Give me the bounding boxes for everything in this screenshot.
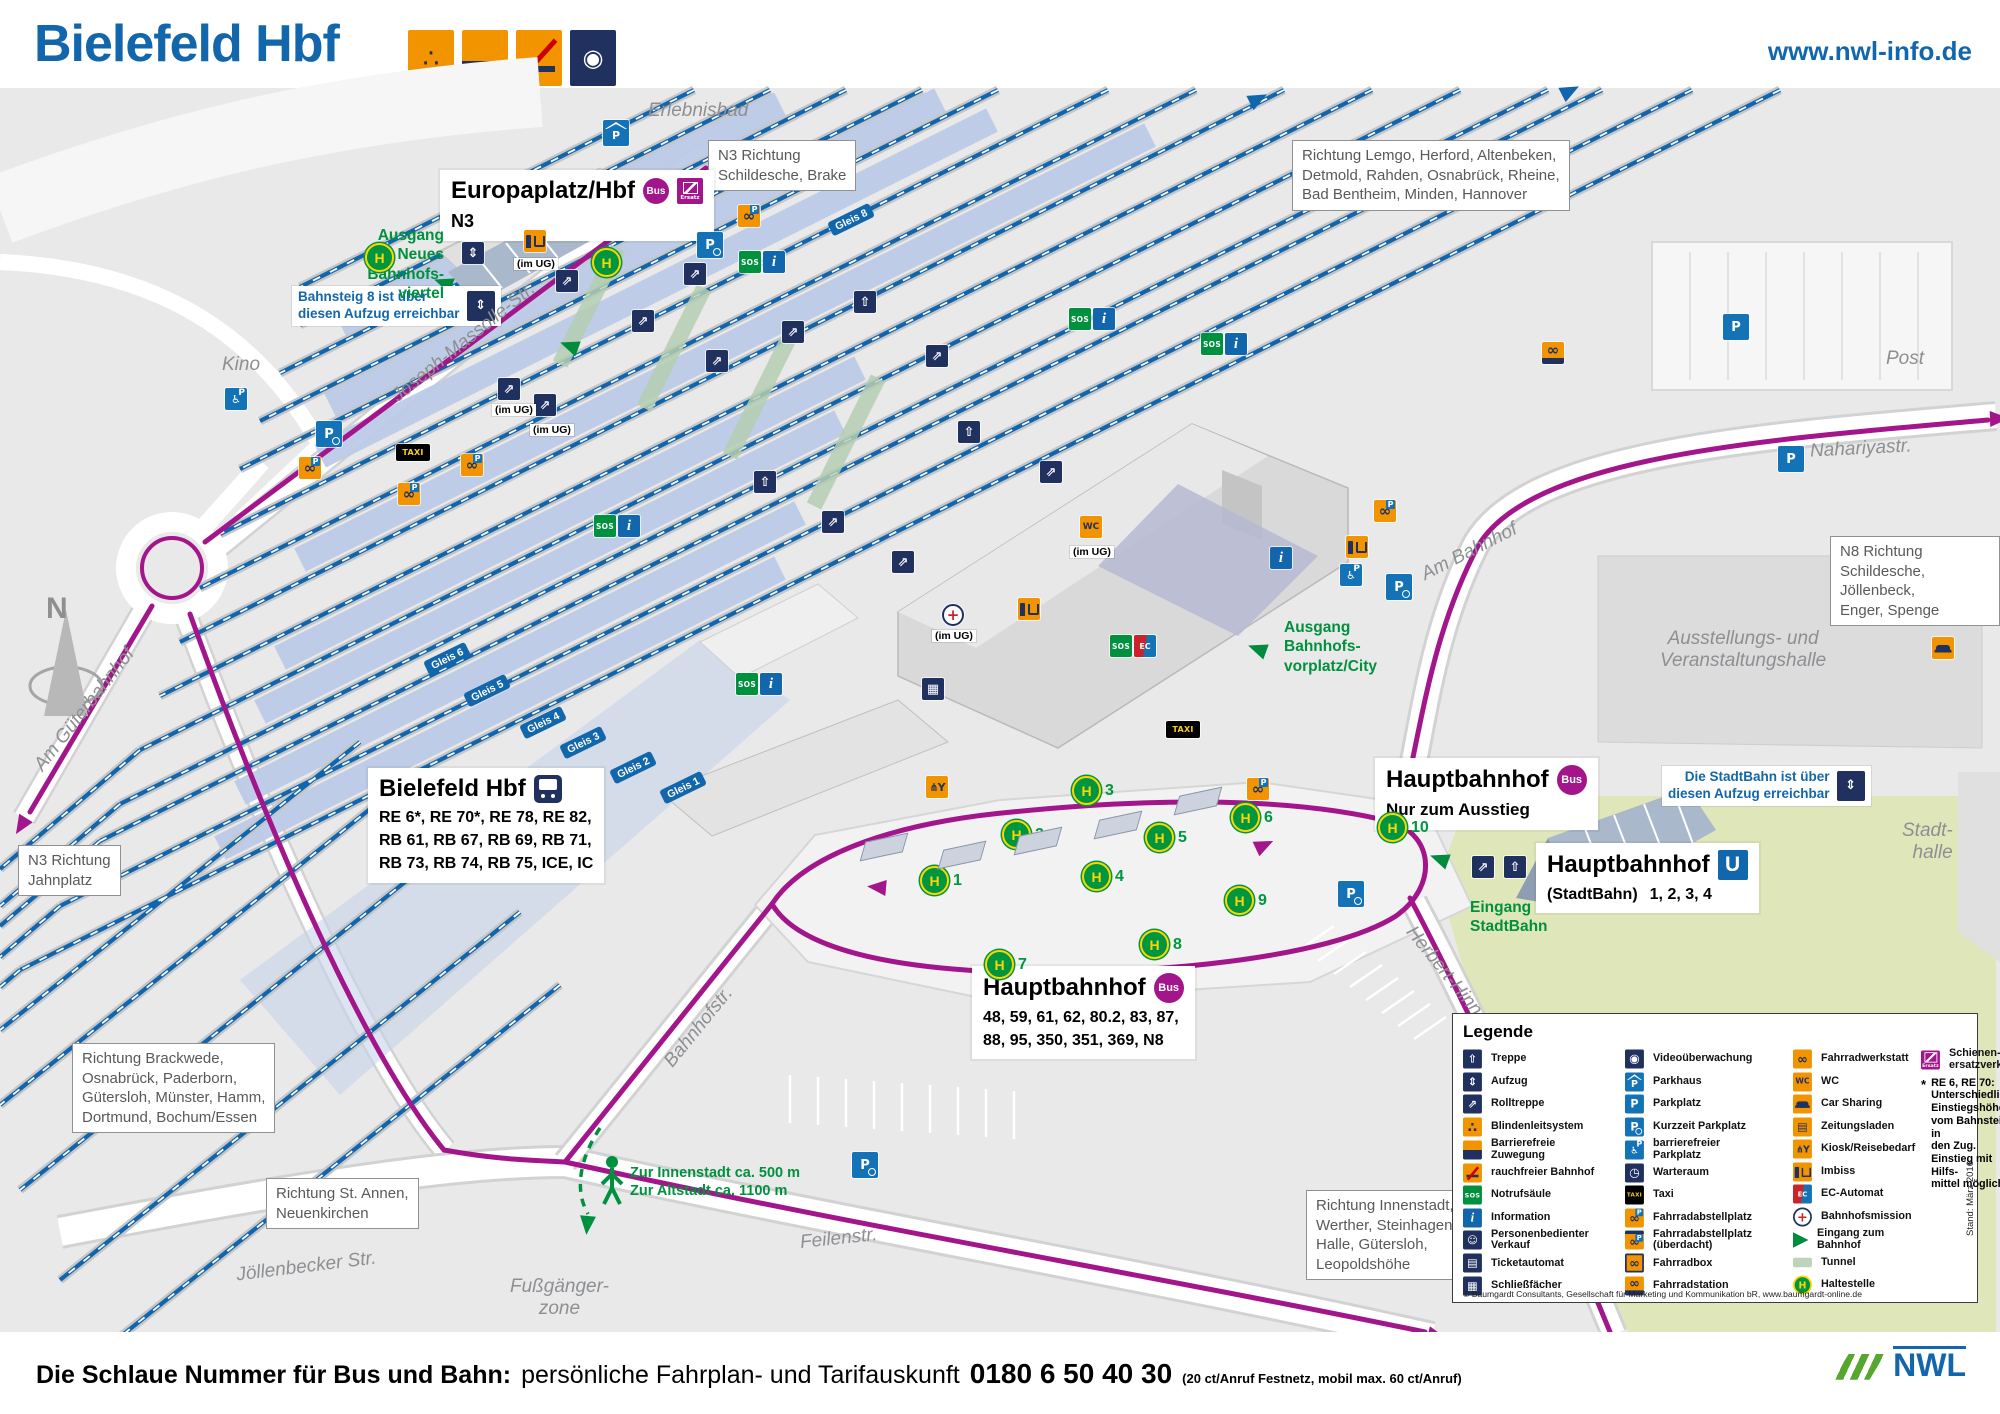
legend-item: Car Sharing — [1793, 1093, 1921, 1116]
haltestelle-icon: H — [592, 248, 621, 277]
bus-stop-h4: H4 — [1082, 862, 1124, 891]
ec-icon — [1134, 635, 1156, 657]
rolltreppe-icon — [1463, 1095, 1482, 1114]
im-ug-label: (im UG) — [932, 630, 976, 642]
aufzug-icon — [1463, 1072, 1482, 1091]
info-icon — [1463, 1208, 1482, 1227]
taxi2-icon — [1166, 721, 1200, 738]
legend-item-label: Ticketautomat — [1491, 1258, 1564, 1270]
stop-number: 7 — [1018, 956, 1027, 974]
bus-stop-h7: H7 — [985, 950, 1027, 979]
legend-item: rauchfreier Bahnhof — [1463, 1161, 1625, 1184]
note-star: * — [1921, 1077, 1926, 1191]
legend-column-1: Treppe Aufzug Rolltreppe Blindenleitsyst… — [1463, 1048, 1625, 1297]
car-icon — [1932, 637, 1954, 659]
p-icon — [1723, 314, 1749, 340]
legend-copyright: © Baumgardt Consultants, Gesellschaft fü… — [1463, 1289, 1862, 1299]
footer-regular-text: persönliche Fahrplan- und Tarifauskunft — [521, 1361, 960, 1390]
legend-item: Barrierefreie Zuwegung — [1463, 1138, 1625, 1161]
esc-icon — [822, 511, 844, 533]
legend: Legende Treppe Aufzug Rolltreppe Blinden… — [1452, 1013, 1978, 1303]
legend-item: Videoüberwachung — [1625, 1048, 1793, 1071]
legend-column-3: Fahrradwerkstatt WC Car Sharing Zeitungs… — [1793, 1048, 1921, 1297]
legend-note: * RE 6, RE 70: Unterschiedliche Einstieg… — [1921, 1077, 2000, 1191]
pclock-icon — [1338, 881, 1364, 907]
bus-shelter — [1174, 787, 1223, 816]
bus-stop-h8: H8 — [1140, 930, 1182, 959]
esc-icon — [498, 378, 520, 400]
nwl-logo-text: NWL — [1893, 1346, 1966, 1380]
legend-column-4: Schienen- ersatzverkehr * RE 6, RE 70: U… — [1921, 1048, 2000, 1297]
legend-item-label: Parkhaus — [1653, 1076, 1702, 1088]
legend-item-label: Fahrradbox — [1653, 1258, 1712, 1270]
legend-item: WC — [1793, 1071, 1921, 1094]
gleis-badge: Gleis 5 — [463, 674, 511, 708]
bus-stop-h3: H3 — [1072, 776, 1114, 805]
stairs-icon — [854, 291, 876, 313]
esc-icon — [534, 394, 556, 416]
legend-item: Tunnel — [1793, 1251, 1921, 1274]
bikep-icon — [738, 205, 760, 227]
ticket-icon — [1463, 1254, 1482, 1273]
wc-icon — [1793, 1072, 1812, 1091]
legend-item: Ticketautomat — [1463, 1252, 1625, 1275]
info-icon — [1093, 308, 1115, 330]
legend-column-2: Videoüberwachung Parkhaus Parkplatz Kurz… — [1625, 1048, 1793, 1297]
zeitung-icon — [1793, 1117, 1812, 1136]
nwl-logo: NWL — [1833, 1346, 1966, 1380]
sos-icon — [1201, 333, 1223, 355]
sos-icon — [739, 251, 761, 273]
legend-item-label: Parkplatz — [1653, 1098, 1701, 1110]
ersatz-icon — [1921, 1050, 1940, 1069]
bikep-icon — [1625, 1208, 1644, 1227]
p-icon — [1778, 446, 1804, 472]
haltestelle-icon: H — [365, 243, 394, 272]
legend-item-label: Notrufsäule — [1491, 1189, 1551, 1201]
bus-stop-h9: H9 — [1225, 886, 1267, 915]
legend-item-label: Tunnel — [1821, 1257, 1856, 1269]
haltestelle-icon: H — [1231, 803, 1260, 832]
haltestelle-icon: H — [1082, 862, 1111, 891]
bus-shelter — [938, 841, 987, 870]
legend-item-label: Kurzzeit Parkplatz — [1653, 1121, 1746, 1133]
gleis-badge: Gleis 1 — [659, 771, 707, 805]
legend-item: Eingang zum Bahnhof — [1793, 1228, 1921, 1251]
legend-item: Fahrradwerkstatt — [1793, 1048, 1921, 1071]
legend-item-label: Fahrradwerkstatt — [1821, 1053, 1909, 1065]
tunnel-icon — [1793, 1258, 1812, 1267]
legend-item-label: Imbiss — [1821, 1166, 1855, 1178]
footer-phone-number: 0180 6 50 40 30 — [970, 1358, 1172, 1390]
info-icon — [763, 251, 785, 273]
esc-icon — [782, 321, 804, 343]
bikep-icon — [1374, 500, 1396, 522]
legend-item: Blindenleitsystem — [1463, 1116, 1625, 1139]
bus-stop: H — [365, 243, 394, 272]
haltestelle-icon: H — [1072, 776, 1101, 805]
imbiss-icon — [1018, 598, 1040, 620]
rauchfrei-icon — [1463, 1163, 1482, 1182]
legend-item: Notrufsäule — [1463, 1184, 1625, 1207]
legend-item: Parkhaus — [1625, 1071, 1793, 1094]
note-title: RE 6, RE 70: — [1931, 1077, 2000, 1089]
page-footer: Die Schlaue Nummer für Bus und Bahn: per… — [0, 1332, 2000, 1414]
esc-icon — [1040, 461, 1062, 483]
stairs-icon — [754, 471, 776, 493]
kiosk-icon — [926, 776, 948, 798]
bus-stop-h1: H1 — [920, 866, 962, 895]
stop-number: 6 — [1264, 809, 1273, 827]
esc-icon — [1472, 856, 1494, 878]
mission-icon — [942, 604, 964, 626]
esc-icon — [926, 345, 948, 367]
stop-number: 4 — [1115, 868, 1124, 886]
imbiss-icon — [1793, 1162, 1812, 1181]
gleis-badge: Gleis 4 — [519, 706, 567, 740]
warte-icon — [1625, 1163, 1644, 1182]
legend-item-label: Kiosk/Reisebedarf — [1821, 1143, 1915, 1155]
aufzug-icon — [462, 242, 484, 264]
gleis-badge: Gleis 3 — [559, 726, 607, 760]
bikestation-icon — [1542, 342, 1564, 364]
info-icon — [618, 515, 640, 537]
sos-icon — [1069, 308, 1091, 330]
legend-item: Aufzug — [1463, 1071, 1625, 1094]
legend-item-label: barrierefreier Parkplatz — [1653, 1138, 1720, 1161]
legend-item-label: EC-Automat — [1821, 1188, 1883, 1200]
legend-item: Fahrradabstellplatz — [1625, 1206, 1793, 1229]
legend-item-label: Zeitungsladen — [1821, 1121, 1894, 1133]
legend-item-label: Barrierefreie Zuwegung — [1491, 1138, 1555, 1161]
bikep-icon — [299, 457, 321, 479]
legend-item: Personenbedienter Verkauf — [1463, 1229, 1625, 1252]
legend-item: barrierefreier Parkplatz — [1625, 1138, 1793, 1161]
bikep-icon — [398, 483, 420, 505]
barrierefrei-icon — [1463, 1140, 1482, 1159]
mission-icon — [1793, 1207, 1812, 1226]
bfp-icon — [1625, 1140, 1644, 1159]
legend-item-label: Fahrradabstellplatz — [1653, 1212, 1752, 1224]
legend-item-label: Eingang zum Bahnhof — [1817, 1228, 1884, 1251]
kiosk-icon — [1793, 1140, 1812, 1159]
info-icon — [1270, 547, 1292, 569]
info-icon — [760, 673, 782, 695]
legend-item: Parkplatz — [1625, 1093, 1793, 1116]
footer-bold-text: Die Schlaue Nummer für Bus und Bahn: — [36, 1361, 511, 1390]
eingang-icon — [1793, 1232, 1808, 1247]
im-ug-label: (im UG) — [514, 258, 558, 270]
legend-item: Taxi — [1625, 1184, 1793, 1207]
legend-item: Bahnhofsmission — [1793, 1206, 1921, 1229]
stop-number: 8 — [1173, 936, 1182, 954]
legend-title: Legende — [1463, 1022, 1967, 1042]
legend-item-label: Fahrradabstellplatz (überdacht) — [1653, 1229, 1752, 1252]
legend-item-label: Blindenleitsystem — [1491, 1121, 1583, 1133]
legend-item-label: Car Sharing — [1821, 1098, 1882, 1110]
sos-icon — [1463, 1186, 1482, 1205]
p-icon — [1625, 1095, 1644, 1114]
legend-item: Zeitungsladen — [1793, 1116, 1921, 1139]
treppe-icon — [1463, 1050, 1482, 1069]
gleis-badge: Gleis 2 — [609, 751, 657, 785]
gleis-badge: Gleis 8 — [827, 203, 875, 237]
car-icon — [1793, 1095, 1812, 1114]
parkhaus-icon — [1625, 1072, 1644, 1091]
esc-icon — [706, 350, 728, 372]
bus-shelter — [1094, 811, 1143, 840]
stop-number: 3 — [1105, 782, 1114, 800]
legend-item: Fahrradbox — [1625, 1252, 1793, 1275]
haltestelle-icon: H — [1225, 886, 1254, 915]
taxi-icon — [1625, 1186, 1644, 1205]
taxi2-icon — [396, 444, 430, 461]
legend-item: Imbiss — [1793, 1161, 1921, 1184]
pclock-icon — [697, 232, 723, 258]
legend-item-label: Taxi — [1653, 1189, 1674, 1201]
ec-icon — [1793, 1185, 1812, 1204]
esc-icon — [684, 263, 706, 285]
legend-item-label: rauchfreier Bahnhof — [1491, 1167, 1594, 1179]
stop-number: 1 — [953, 872, 962, 890]
im-ug-label: (im UG) — [1070, 546, 1114, 558]
legend-item-label: Treppe — [1491, 1053, 1526, 1065]
locker-icon — [922, 678, 944, 700]
bus-stop-h5: H5 — [1145, 823, 1187, 852]
pclock-icon — [1625, 1117, 1644, 1136]
imbiss-icon — [1346, 536, 1368, 558]
video-icon — [1625, 1050, 1644, 1069]
bus-stop-h10: H10 — [1378, 813, 1429, 842]
legend-stand: Stand: März 2016 — [1965, 1161, 1976, 1236]
legend-item: Information — [1463, 1206, 1625, 1229]
stop-number: 5 — [1178, 829, 1187, 847]
legend-item-label: Information — [1491, 1212, 1550, 1224]
haltestelle-icon: H — [985, 950, 1014, 979]
bikep-icon — [461, 454, 483, 476]
nwl-logo-stripes — [1833, 1354, 1885, 1380]
esc-icon — [892, 551, 914, 573]
bikewerk-icon — [1793, 1050, 1812, 1069]
parkhaus-icon — [603, 120, 629, 146]
bfp-icon — [1340, 564, 1362, 586]
wc-icon — [1080, 516, 1102, 538]
bus-stop: H — [592, 248, 621, 277]
bikeproof-icon — [1625, 1231, 1644, 1250]
pclock-icon — [1386, 574, 1412, 600]
bfp-icon — [225, 388, 247, 410]
blinden-icon — [1463, 1117, 1482, 1136]
im-ug-label: (im UG) — [530, 424, 574, 436]
info-icon — [1225, 333, 1247, 355]
gleis-badge: Gleis 6 — [423, 642, 471, 676]
legend-item: Kiosk/Reisebedarf — [1793, 1138, 1921, 1161]
legend-item-label: Bahnhofsmission — [1821, 1211, 1912, 1223]
haltestelle-icon: H — [1140, 930, 1169, 959]
station-map-page: Bielefeld Hbf ∴ ◉ www.nwl-info.de — [0, 0, 2000, 1414]
verkauf-icon — [1463, 1231, 1482, 1250]
sos-icon — [1110, 635, 1132, 657]
legend-item: Kurzzeit Parkplatz — [1625, 1116, 1793, 1139]
im-ug-label: (im UG) — [492, 404, 536, 416]
legend-item: EC-Automat — [1793, 1183, 1921, 1206]
haltestelle-icon: H — [920, 866, 949, 895]
legend-item: Warteraum — [1625, 1161, 1793, 1184]
pclock-icon — [852, 1152, 878, 1178]
legend-item: Treppe — [1463, 1048, 1625, 1071]
stairs-icon — [1504, 856, 1526, 878]
bikep-icon — [1247, 778, 1269, 800]
legend-item-label: Warteraum — [1653, 1167, 1709, 1179]
sos-icon — [736, 673, 758, 695]
bus-stop-h6: H6 — [1231, 803, 1273, 832]
sos-icon — [594, 515, 616, 537]
bikebox-icon — [1625, 1254, 1644, 1273]
legend-item-label: Rolltreppe — [1491, 1098, 1544, 1110]
pclock-icon — [316, 421, 342, 447]
esc-icon — [556, 270, 578, 292]
imbiss-icon — [524, 230, 546, 252]
legend-item-label: WC — [1821, 1076, 1839, 1088]
legend-item: Fahrradabstellplatz (überdacht) — [1625, 1229, 1793, 1252]
legend-item-label: Aufzug — [1491, 1076, 1528, 1088]
legend-item-label: Videoüberwachung — [1653, 1053, 1752, 1065]
legend-item: Rolltreppe — [1463, 1093, 1625, 1116]
haltestelle-icon: H — [1378, 813, 1407, 842]
stairs-icon — [958, 421, 980, 443]
legend-item-label: Schienen- ersatzverkehr — [1949, 1048, 2000, 1071]
esc-icon — [632, 310, 654, 332]
legend-item-label: Personenbedienter Verkauf — [1491, 1229, 1589, 1252]
stop-number: 9 — [1258, 892, 1267, 910]
stop-number: 10 — [1411, 819, 1429, 837]
footer-call-cost: (20 ct/Anruf Festnetz, mobil max. 60 ct/… — [1182, 1371, 1462, 1386]
bus-shelter — [860, 833, 909, 862]
haltestelle-icon: H — [1145, 823, 1174, 852]
